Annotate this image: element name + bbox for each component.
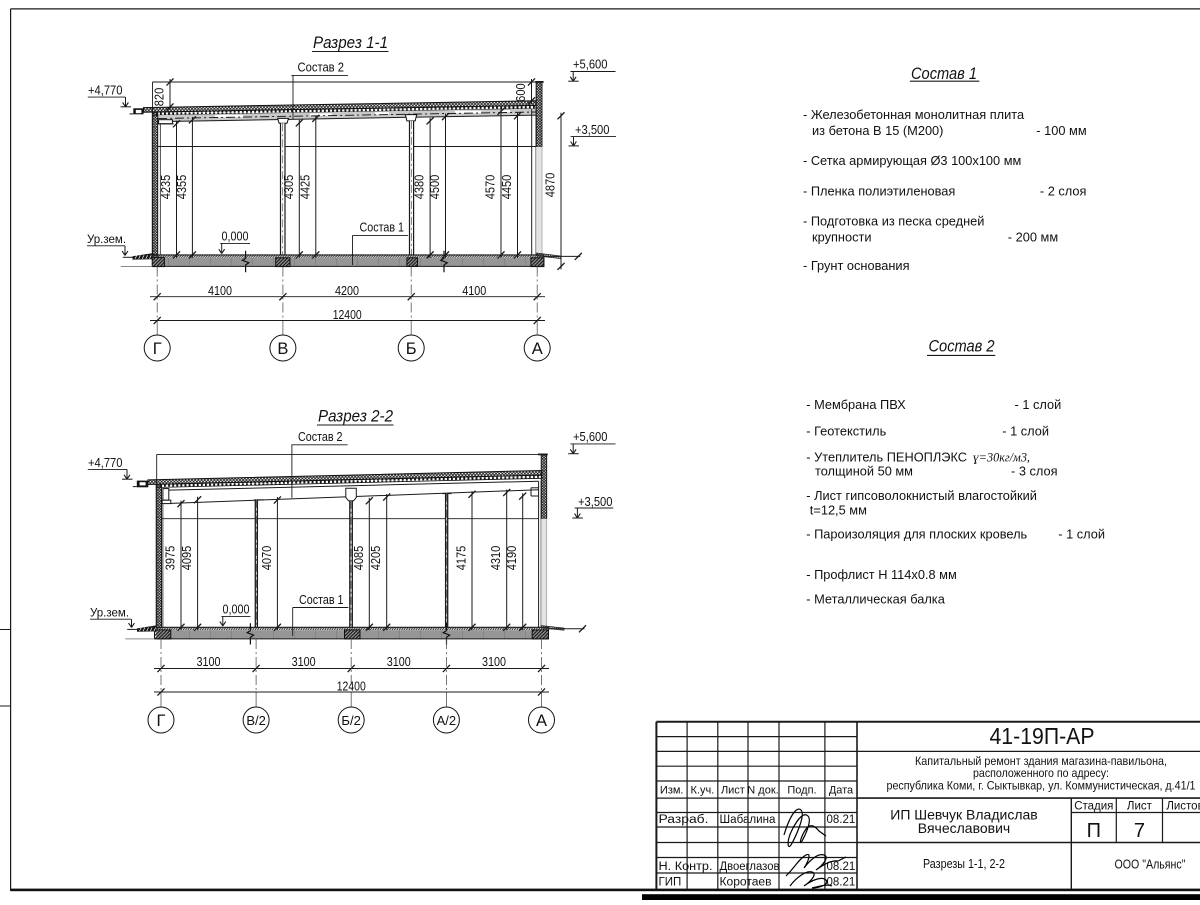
- svg-text:Дата: Дата: [829, 785, 854, 797]
- svg-text:4200: 4200: [335, 283, 359, 298]
- svg-text:- Мембрана ПВХ: - Мембрана ПВХ: [806, 397, 906, 412]
- svg-text:ГИП: ГИП: [659, 876, 682, 888]
- svg-text:- Металлическая балка: - Металлическая балка: [806, 591, 945, 606]
- svg-text:Б: Б: [406, 340, 417, 358]
- svg-text:7: 7: [1134, 820, 1145, 842]
- svg-text:4205: 4205: [368, 546, 383, 571]
- svg-text:12400: 12400: [333, 307, 362, 322]
- svg-text:4190: 4190: [504, 546, 519, 571]
- svg-text:ООО "Альянс": ООО "Альянс": [1115, 857, 1186, 872]
- svg-text:4500: 4500: [427, 175, 442, 200]
- svg-text:N док.: N док.: [747, 785, 778, 797]
- svg-text:+4,770: +4,770: [88, 84, 123, 98]
- svg-text:из бетона В 15 (М200): из бетона В 15 (М200): [812, 123, 943, 138]
- svg-text:3100: 3100: [482, 654, 506, 669]
- svg-text:4870: 4870: [543, 173, 558, 198]
- svg-text:расположенного по адресу:: расположенного по адресу:: [973, 767, 1109, 780]
- svg-text:4100: 4100: [208, 283, 232, 298]
- svg-text:820: 820: [152, 88, 167, 107]
- svg-text:Разрез 1-1: Разрез 1-1: [313, 34, 388, 52]
- svg-text:4095: 4095: [179, 546, 194, 571]
- svg-text:- 1 слой: - 1 слой: [1058, 527, 1105, 542]
- svg-text:4425: 4425: [297, 175, 312, 200]
- svg-text:Разрез 2-2: Разрез 2-2: [318, 408, 393, 426]
- svg-text:12400: 12400: [337, 678, 366, 693]
- svg-text:3975: 3975: [163, 546, 178, 571]
- svg-text:ɣ=30кг/м3,: ɣ=30кг/м3,: [973, 450, 1030, 464]
- svg-text:Вячеславович: Вячеславович: [918, 820, 1010, 836]
- svg-text:- 100 мм: - 100 мм: [1036, 123, 1086, 138]
- svg-text:крупности: крупности: [812, 230, 872, 245]
- svg-text:- Пленка полиэтиленовая: - Пленка полиэтиленовая: [803, 183, 955, 198]
- svg-text:4100: 4100: [462, 283, 486, 298]
- svg-text:Листов: Листов: [1166, 800, 1200, 812]
- svg-text:Изм.: Изм.: [660, 785, 684, 797]
- svg-text:+5,600: +5,600: [573, 430, 608, 444]
- svg-text:Состав 2: Состав 2: [298, 430, 343, 444]
- svg-text:08.21: 08.21: [827, 876, 856, 888]
- svg-text:4070: 4070: [259, 546, 274, 571]
- svg-text:А: А: [536, 712, 547, 730]
- svg-text:- Грунт основания: - Грунт основания: [803, 258, 910, 273]
- svg-text:- Железобетонная монолитная п: - Железобетонная монолитная плита: [803, 107, 1025, 122]
- svg-text:Г: Г: [153, 340, 162, 358]
- svg-text:толщиной 50 мм: толщиной 50 мм: [815, 464, 913, 479]
- svg-text:+4,770: +4,770: [88, 456, 123, 470]
- svg-text:- 2 слоя: - 2 слоя: [1040, 183, 1087, 198]
- svg-text:4305: 4305: [281, 175, 296, 200]
- svg-text:Лист: Лист: [1127, 800, 1153, 812]
- svg-text:+3,500: +3,500: [575, 123, 610, 137]
- svg-text:Коротаев: Коротаев: [720, 876, 772, 888]
- svg-text:П: П: [1087, 820, 1101, 842]
- svg-text:Состав 2: Состав 2: [929, 337, 995, 356]
- svg-text:Состав 2: Состав 2: [298, 61, 345, 75]
- svg-text:В/2: В/2: [246, 714, 266, 728]
- svg-text:08.21: 08.21: [827, 814, 856, 826]
- svg-text:3100: 3100: [197, 654, 221, 669]
- svg-text:В: В: [277, 340, 288, 358]
- svg-text:4570: 4570: [483, 175, 498, 200]
- svg-text:- Сетка армирующая Ø3 100х100: - Сетка армирующая Ø3 100х100 мм: [803, 153, 1021, 168]
- svg-text:0,000: 0,000: [223, 603, 250, 617]
- svg-text:Н. Контр.: Н. Контр.: [659, 861, 713, 873]
- svg-text:3100: 3100: [292, 654, 316, 669]
- svg-text:t=12,5 мм: t=12,5 мм: [810, 502, 867, 517]
- svg-text:республика Коми, г. Сыктывкар,: республика Коми, г. Сыктывкар, ул. Комму…: [887, 780, 1196, 793]
- svg-text:Состав 1: Состав 1: [911, 64, 977, 83]
- svg-text:Ур.зем.: Ур.зем.: [90, 608, 129, 620]
- svg-text:- Пароизоляция для плоских кро: - Пароизоляция для плоских кровель: [806, 527, 1027, 542]
- svg-text:+3,500: +3,500: [578, 495, 613, 509]
- svg-text:Капитальный ремонт здания мага: Капитальный ремонт здания магазина-павил…: [915, 755, 1167, 768]
- svg-text:- 1 слой: - 1 слой: [1015, 397, 1062, 412]
- svg-text:Б/2: Б/2: [341, 714, 361, 728]
- svg-text:Подп.: Подп.: [787, 785, 816, 797]
- svg-text:Разраб.: Разраб.: [659, 814, 709, 826]
- svg-text:3100: 3100: [387, 654, 411, 669]
- svg-text:4235: 4235: [158, 175, 173, 200]
- svg-text:- Подготовка из песка средней: - Подготовка из песка средней: [803, 214, 984, 229]
- svg-text:Лист: Лист: [721, 785, 745, 797]
- svg-text:К.уч.: К.уч.: [691, 785, 715, 797]
- svg-text:Ур.зем.: Ур.зем.: [87, 234, 126, 246]
- svg-text:08.21: 08.21: [827, 861, 856, 873]
- svg-text:Разрезы 1-1, 2-2: Разрезы 1-1, 2-2: [923, 856, 1005, 871]
- svg-text:- Геотекстиль: - Геотекстиль: [806, 424, 886, 439]
- svg-text:Шабалина: Шабалина: [720, 814, 777, 826]
- svg-text:4085: 4085: [351, 546, 366, 571]
- svg-text:+5,600: +5,600: [573, 58, 608, 72]
- svg-text:- Лист гипсоволокнистый влагос: - Лист гипсоволокнистый влагостойкий: [806, 488, 1037, 503]
- svg-text:- 1 слой: - 1 слой: [1002, 424, 1049, 439]
- svg-text:41-19П-АР: 41-19П-АР: [990, 723, 1095, 749]
- svg-text:4450: 4450: [499, 175, 514, 200]
- svg-text:4355: 4355: [174, 175, 189, 200]
- svg-text:4380: 4380: [412, 175, 427, 200]
- svg-text:4175: 4175: [454, 546, 469, 571]
- svg-text:600: 600: [513, 83, 528, 102]
- svg-text:Г: Г: [157, 712, 166, 730]
- svg-text:Двоеглазов: Двоеглазов: [720, 861, 780, 873]
- svg-text:- Утеплитель ПЕНОПЛЭКС: - Утеплитель ПЕНОПЛЭКС: [806, 449, 967, 464]
- svg-text:А: А: [532, 340, 543, 358]
- svg-text:0,000: 0,000: [222, 230, 249, 244]
- svg-text:4310: 4310: [488, 546, 503, 571]
- svg-text:Состав 1: Состав 1: [360, 221, 405, 235]
- svg-text:Стадия: Стадия: [1074, 800, 1113, 812]
- svg-text:- 3 слоя: - 3 слоя: [1011, 464, 1058, 479]
- svg-text:А/2: А/2: [437, 714, 457, 728]
- svg-text:- 200 мм: - 200 мм: [1008, 230, 1058, 245]
- svg-text:Состав 1: Состав 1: [299, 593, 344, 607]
- svg-text:- Профлист Н 114х0.8 мм: - Профлист Н 114х0.8 мм: [806, 567, 956, 582]
